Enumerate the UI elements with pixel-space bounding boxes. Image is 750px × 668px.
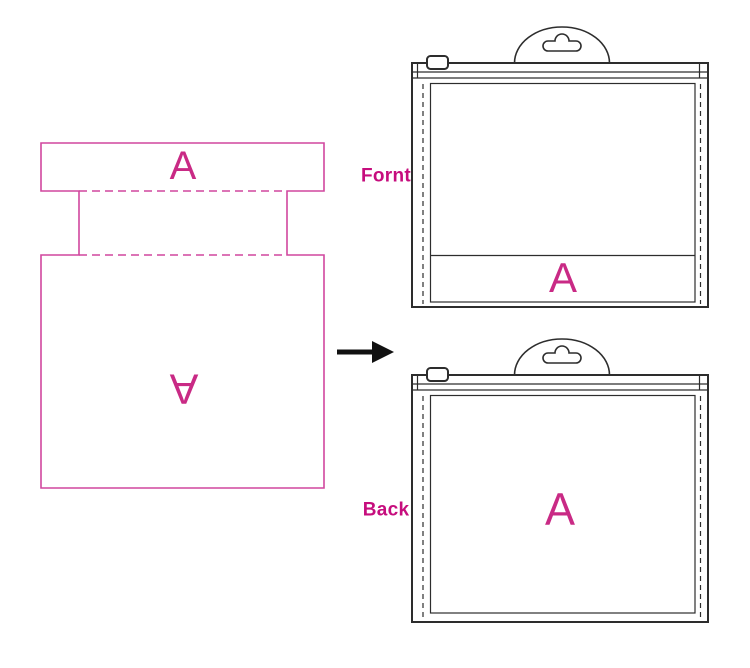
template-back-letter: A	[170, 367, 199, 410]
back-bag-letter: A	[545, 487, 575, 532]
arrow-right-icon	[337, 341, 394, 363]
back-bag-label: Back	[363, 501, 410, 520]
zipper-slider-icon	[427, 368, 448, 381]
packaging-diagram: A A Fornt A Back A	[0, 0, 750, 668]
diagram-lineart	[0, 0, 750, 668]
front-bag-label: Fornt	[361, 167, 411, 186]
arrow-head	[372, 341, 394, 363]
flat-template-drawing	[41, 143, 324, 488]
zipper-slider-icon	[427, 56, 448, 69]
front-bag-letter: A	[549, 257, 577, 299]
template-front-letter: A	[170, 146, 197, 186]
back-bag-drawing	[412, 339, 708, 622]
template-outline	[41, 143, 324, 488]
